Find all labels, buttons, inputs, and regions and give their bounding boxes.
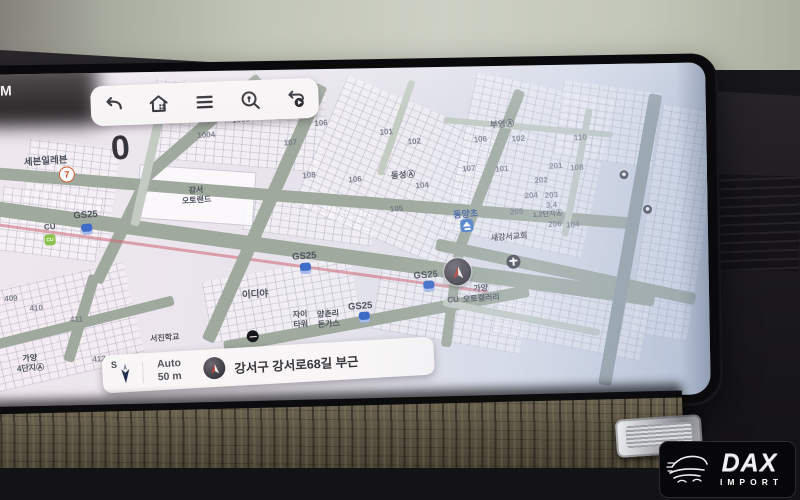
map-label: 부영Ⓐ bbox=[490, 117, 515, 131]
map-label: 107 bbox=[283, 138, 297, 148]
map-label: 102 bbox=[407, 136, 421, 146]
map-label: 106 bbox=[473, 134, 487, 144]
map-label: 102 bbox=[511, 134, 525, 144]
map-label: 101 bbox=[495, 164, 509, 174]
map-label: 206 bbox=[548, 219, 562, 229]
map-label: 201 bbox=[549, 161, 563, 171]
map-label: 이디야 bbox=[241, 285, 268, 301]
map-label: CU bbox=[44, 222, 56, 232]
watermark-brand: DAX bbox=[722, 452, 778, 475]
compass-needle-icon bbox=[119, 363, 132, 384]
ic-church-icon bbox=[506, 254, 521, 269]
map-label: 410 bbox=[29, 303, 43, 313]
status-clock: AM bbox=[0, 82, 12, 98]
ic-ediya-icon bbox=[246, 330, 259, 343]
back-button[interactable] bbox=[98, 90, 129, 121]
route-replay-button[interactable] bbox=[280, 83, 311, 114]
current-address[interactable]: 강서구 강서로68길 부근 bbox=[234, 350, 359, 376]
map-label: 205 bbox=[510, 207, 524, 217]
map-label: 강서 오토랜드 bbox=[181, 185, 212, 206]
map-label: 202 bbox=[534, 175, 548, 185]
map-label: 101 bbox=[379, 127, 393, 137]
home-button[interactable] bbox=[144, 88, 175, 119]
map-label: 409 bbox=[4, 294, 18, 304]
map-label: 106 bbox=[314, 118, 328, 128]
menu-button[interactable] bbox=[189, 87, 220, 118]
map-label: GS25 bbox=[413, 269, 438, 282]
ic-dark-icon bbox=[619, 170, 629, 180]
car-silhouette-icon bbox=[666, 447, 708, 492]
map-label: 가양 4단지Ⓐ bbox=[16, 353, 44, 374]
map-label: CU bbox=[447, 295, 459, 305]
compass-button[interactable]: S bbox=[101, 353, 143, 393]
map-label: 동성Ⓐ bbox=[390, 168, 415, 182]
menu-icon bbox=[192, 90, 217, 115]
map-label: GS25 bbox=[348, 300, 373, 313]
scale-value: 50 m bbox=[143, 369, 196, 385]
home-icon bbox=[147, 91, 172, 116]
search-pin-icon bbox=[238, 88, 263, 113]
map-label: 104 bbox=[566, 220, 580, 230]
navigation-screen[interactable]: 세븐일레븐7GS25CUCU0강서 오토랜드100410051061071081… bbox=[0, 62, 711, 408]
ic-dark-icon bbox=[643, 205, 653, 215]
photo-of-car-infotainment: 세븐일레븐7GS25CUCU0강서 오토랜드100410051061071081… bbox=[0, 0, 800, 500]
watermark-sub: IMPORT bbox=[720, 477, 783, 487]
ic-gs-icon bbox=[359, 311, 371, 323]
map-label: 411 bbox=[70, 314, 84, 324]
map-label: 110 bbox=[574, 133, 588, 143]
map-label: 105 bbox=[390, 204, 404, 214]
map-label: 203 bbox=[544, 190, 558, 200]
back-arrow-icon bbox=[101, 93, 126, 118]
map-label: 108 bbox=[302, 170, 316, 180]
map-label: 세븐일레븐 bbox=[23, 151, 68, 168]
map-label: 104 bbox=[415, 180, 429, 190]
map-label: 서진학교 bbox=[150, 331, 180, 344]
map-scale-control[interactable]: Auto 50 m bbox=[143, 356, 196, 385]
map-label: 204 bbox=[524, 190, 538, 200]
current-location-icon bbox=[203, 357, 226, 380]
cowl-shadow bbox=[0, 62, 98, 128]
ic-gs-icon bbox=[81, 223, 93, 235]
ic-gs-icon bbox=[300, 262, 312, 274]
route-replay-icon bbox=[283, 86, 308, 111]
search-place-button[interactable] bbox=[235, 85, 266, 116]
display-bezel: 세븐일레븐7GS25CUCU0강서 오토랜드100410051061071081… bbox=[0, 53, 723, 419]
map-label: 0 bbox=[110, 128, 132, 168]
ic-seven-icon: 7 bbox=[58, 166, 75, 183]
ic-gs-icon bbox=[423, 280, 435, 292]
ic-cu-icon: CU bbox=[44, 234, 56, 246]
map-label: 106 bbox=[348, 175, 362, 185]
map-label: GS25 bbox=[73, 209, 98, 222]
map-label: 자이 타워 bbox=[292, 309, 308, 329]
compass-letter: S bbox=[111, 360, 118, 370]
map-label: 108 bbox=[570, 163, 584, 173]
map-label: 107 bbox=[462, 164, 476, 174]
map-label: 1004 bbox=[197, 130, 215, 140]
map-label: GS25 bbox=[292, 250, 317, 263]
map-label: 새강서교회 bbox=[490, 230, 527, 244]
ic-school-icon bbox=[460, 219, 474, 233]
map-label: 양촌리 돈가스 bbox=[317, 309, 340, 330]
dax-import-watermark: DAX IMPORT bbox=[659, 441, 796, 498]
map-label: 가양 오토갤러리 bbox=[462, 282, 500, 304]
